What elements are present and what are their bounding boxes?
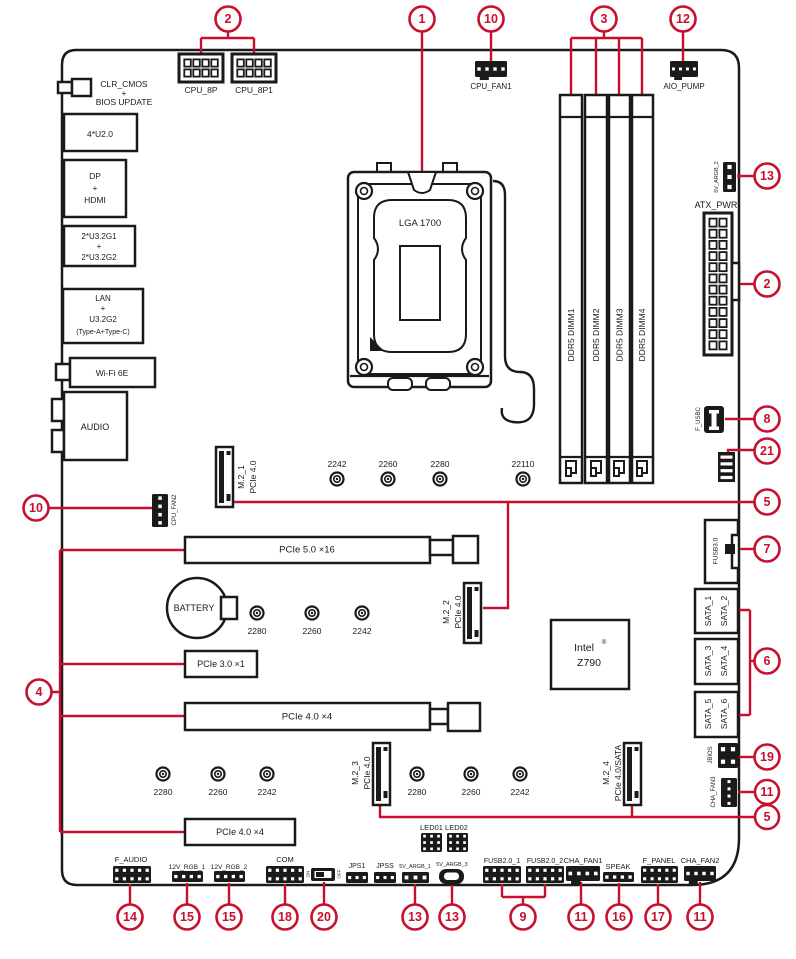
pin [586, 872, 590, 876]
cha-fan1-label: CHA_FAN1 [564, 856, 603, 865]
pin [437, 848, 440, 851]
pin [138, 877, 141, 880]
pin [719, 341, 726, 349]
fusb2-1-header [483, 866, 521, 883]
socket-screw-tl [356, 183, 372, 199]
m2-4-label: M.2_4 [601, 761, 611, 785]
pin [255, 69, 261, 76]
callout-number: 14 [123, 910, 137, 924]
dimm4-latch-tab [637, 468, 642, 476]
sata4-label: SATA_4 [719, 646, 729, 677]
dimm-slot-4: DDR5 DIMM4 [632, 95, 653, 483]
callout-number: 5 [764, 810, 771, 824]
m2-3-label: M.2_3 [350, 761, 360, 785]
dp-hdmi-plus: + [93, 183, 98, 193]
battery-notch [221, 597, 237, 619]
f-panel-header [641, 866, 678, 883]
dimm4-label: DDR5 DIMM4 [637, 308, 647, 361]
standoff-label: 2280 [408, 787, 427, 797]
argb1-label: 5V_ARGB_1 [399, 864, 431, 870]
callout-21: 21 [755, 439, 780, 464]
fusb3-header: FUSB3.0 [705, 520, 738, 583]
clr-cmos-nub [58, 82, 72, 93]
pin [485, 67, 488, 70]
pin [719, 297, 726, 305]
pin [299, 869, 302, 872]
pin [516, 877, 519, 880]
pin [193, 59, 200, 66]
callout-10-left: 10 [24, 496, 49, 521]
pin [658, 877, 661, 880]
pin [651, 869, 654, 872]
pin [115, 877, 118, 880]
standoff-label: 2280 [431, 459, 450, 469]
pcie4a-label: PCIe 4.0 ×4 [282, 712, 332, 723]
sata-block-34: SATA_3 SATA_4 [695, 639, 738, 684]
f-audio-label: F_AUDIO [115, 855, 148, 864]
pin [651, 877, 654, 880]
socket-screw-tr [467, 183, 483, 199]
callout-19: 19 [755, 745, 780, 770]
pin [237, 59, 244, 66]
dimm4-body [632, 95, 653, 483]
callout-15b: 15 [217, 905, 242, 930]
pin [211, 59, 218, 66]
connector-body [113, 866, 151, 883]
pin [500, 869, 503, 872]
callout-number: 18 [278, 910, 292, 924]
callout-10-top: 10 [479, 7, 504, 32]
pcie4a-latch [448, 703, 480, 731]
socket-foot-right [426, 378, 450, 390]
pin [240, 875, 243, 878]
pin [709, 286, 716, 294]
switch-off-label: OFF [337, 869, 342, 878]
port-audio: AUDIO [52, 392, 127, 460]
pin [621, 875, 624, 878]
cha-fan2-label: CHA_FAN2 [681, 856, 720, 865]
led-block-2 [447, 833, 468, 852]
dimm-slot-1: DDR5 DIMM1 [560, 95, 582, 483]
standoff [157, 768, 170, 781]
f-usbc-header: F_USBC [696, 406, 724, 433]
pin [719, 230, 726, 238]
pin [728, 780, 731, 783]
chipset-model: Z790 [577, 657, 601, 669]
jps1-header [346, 872, 368, 883]
pin [158, 505, 162, 509]
pin [291, 877, 294, 880]
debug-led-block [718, 452, 735, 482]
connector-body [641, 866, 678, 883]
sata-56-box [695, 692, 738, 737]
pin [686, 872, 689, 875]
pin [508, 877, 511, 880]
callout-4: 4 [27, 680, 52, 705]
pcie4a-neck [430, 709, 448, 724]
standoff [306, 607, 319, 620]
callout-number: 13 [445, 910, 459, 924]
pin [391, 876, 394, 879]
pin [643, 877, 646, 880]
pin [673, 869, 676, 872]
argb2-label: 5V_ARGB_2 [714, 161, 720, 193]
pin [430, 841, 433, 844]
callout-number: 11 [760, 785, 773, 799]
pcie4b-label: PCIe 4.0 ×4 [216, 827, 264, 837]
pin [658, 869, 661, 872]
socket-foot-left [388, 378, 412, 390]
callout-1: 1 [410, 7, 435, 32]
pin [193, 69, 200, 76]
connector-body [179, 54, 223, 82]
callout-number: 16 [612, 910, 626, 924]
rgb2-label: 12V_RGB_2 [211, 864, 248, 871]
callout-number: 20 [317, 910, 331, 924]
standoff [514, 768, 527, 781]
pin [423, 841, 426, 844]
pin [158, 521, 162, 525]
com-label: COM [276, 855, 294, 864]
pin [174, 875, 177, 878]
pin [500, 877, 503, 880]
pin [423, 835, 426, 838]
cha-fan3-header [721, 778, 737, 807]
standoff [212, 768, 225, 781]
callout-11a: 11 [569, 905, 594, 930]
connector-body [526, 866, 564, 883]
pin [456, 848, 459, 851]
cpu-fan2-label: CPU_FAN2 [172, 494, 178, 526]
pin [423, 876, 427, 880]
standoff [517, 473, 530, 486]
pin [283, 877, 286, 880]
standoff-label: 2260 [303, 626, 322, 636]
pin [731, 747, 735, 751]
m2-1-bus-label: PCIe 4.0 [248, 460, 258, 493]
pin [363, 876, 366, 879]
callout-number: 2 [764, 277, 771, 291]
pin [536, 877, 539, 880]
pin [264, 69, 271, 76]
sata-12-box [695, 589, 738, 633]
callout-17: 17 [646, 905, 671, 930]
pin [528, 869, 531, 872]
pin [430, 848, 433, 851]
dimm1-latch-tab [566, 468, 571, 476]
callout-number: 8 [764, 412, 771, 426]
cpu-8p-connector [179, 54, 223, 82]
audio-label: AUDIO [81, 422, 110, 432]
pin [702, 872, 705, 875]
pin [686, 68, 689, 71]
sata6-label: SATA_6 [719, 699, 729, 730]
pin [693, 68, 696, 71]
callout-13b: 13 [440, 905, 465, 930]
pin [456, 841, 459, 844]
rgb1-label: 12V_RGB_1 [169, 864, 206, 871]
pin [190, 875, 193, 878]
m2-2-label: M.2_2 [441, 600, 451, 624]
callout-number: 17 [651, 910, 665, 924]
audio-jack-nub-1 [52, 399, 64, 421]
argb3-header [439, 869, 464, 884]
pcie-4-x4-bottom-slot: PCIe 4.0 ×4 [185, 819, 295, 845]
dimm3-latch-tab [614, 468, 619, 476]
m2-4-bus-label: PCIe 4.0/SATA [613, 744, 623, 801]
pin [246, 59, 253, 66]
callout-number: 5 [764, 495, 771, 509]
pin [232, 875, 235, 878]
callout-2-top: 2 [216, 7, 241, 32]
pin [437, 835, 440, 838]
callout-number: 15 [180, 910, 194, 924]
callout-2-right: 2 [755, 272, 780, 297]
pin [485, 869, 488, 872]
switch-knob [316, 872, 324, 877]
pin [356, 876, 359, 879]
socket-label: LGA 1700 [399, 218, 441, 229]
pin [559, 869, 562, 872]
standoff-label: 2242 [353, 626, 372, 636]
pin [709, 308, 716, 316]
standoff [434, 473, 447, 486]
pin [477, 67, 480, 70]
fusb2-1-label: FUSB2.0_1 [484, 858, 520, 865]
callout-number: 6 [764, 654, 771, 668]
callout-18: 18 [273, 905, 298, 930]
pin [138, 869, 141, 872]
pin [528, 877, 531, 880]
pin [123, 869, 126, 872]
cpu-8p1-label: CPU_8P1 [235, 85, 273, 95]
connector-key-tab [480, 77, 489, 80]
chipset-brand: Intel [574, 642, 594, 654]
pin [202, 59, 209, 66]
port-wifi: Wi-Fi 6E [56, 358, 155, 387]
fusb2-2-label: FUSB2.0_2 [527, 858, 563, 865]
lan-label: LAN [95, 294, 111, 303]
pin [728, 795, 731, 798]
lan-usb-label: U3.2G2 [89, 315, 117, 324]
socket-screw-br [467, 359, 483, 375]
pin [543, 877, 546, 880]
sata-block-56: SATA_5 SATA_6 [695, 692, 738, 737]
connector-body [232, 54, 276, 82]
pin [348, 876, 351, 879]
pin [719, 308, 726, 316]
pin [559, 877, 562, 880]
pin [501, 67, 504, 70]
callout-6: 6 [755, 649, 780, 674]
pin [665, 877, 668, 880]
callout-number: 7 [764, 542, 771, 556]
pin [629, 875, 632, 878]
pin [709, 297, 716, 305]
port-wifi-nub [56, 364, 70, 380]
usb32-plus: + [97, 242, 102, 251]
pin [727, 175, 731, 179]
pin [202, 69, 209, 76]
callout-number: 4 [36, 685, 43, 699]
pin [543, 869, 546, 872]
cpu-8p1-connector [232, 54, 276, 82]
pin [485, 877, 488, 880]
port-usb2-label: 4*U2.0 [87, 129, 113, 139]
pin [493, 877, 496, 880]
pin [115, 869, 118, 872]
clr-cmos-body [72, 79, 91, 96]
standoff-label: 2242 [511, 787, 530, 797]
pin [449, 835, 452, 838]
pin [728, 802, 731, 805]
socket-screw-bl [356, 359, 372, 375]
pin [158, 496, 162, 500]
pin [508, 869, 511, 872]
fusb3-key [725, 544, 735, 554]
standoff-label: 22110 [511, 459, 534, 469]
callout-line-9 [502, 884, 545, 904]
pin [264, 59, 271, 66]
callout-16: 16 [607, 905, 632, 930]
callout-number: 11 [693, 910, 706, 924]
pin [430, 835, 433, 838]
pin [709, 252, 716, 260]
pin [727, 185, 731, 189]
pin [710, 872, 713, 875]
callout-line-6 [739, 610, 754, 715]
cha-fan3-label: CHA_FAN3 [711, 776, 717, 808]
pin [449, 848, 452, 851]
standoff-label: 2260 [379, 459, 398, 469]
diagram-canvas: CLR_CMOS + BIOS UPDATE 4*U2.0 DP + HDMI … [0, 0, 796, 959]
pin [719, 319, 726, 327]
pin [146, 869, 149, 872]
fusb2-2-header [526, 866, 564, 883]
pin [709, 274, 716, 282]
callout-5-lower: 5 [755, 805, 779, 829]
connector-body [483, 866, 521, 883]
callout-number: 10 [484, 12, 498, 26]
pin [536, 869, 539, 872]
bios-update-label: BIOS UPDATE [96, 97, 153, 107]
usb32-g1-label: 2*U3.2G1 [81, 232, 117, 241]
pcie5-neck [430, 540, 453, 555]
lan-type-label: (Type-A+Type-C) [76, 329, 130, 336]
m2-3-bus-label: PCIe 4.0 [362, 756, 372, 789]
callout-11-right: 11 [755, 780, 779, 804]
pin [551, 877, 554, 880]
callout-number: 10 [29, 501, 43, 515]
dimm3-label: DDR5 DIMM3 [615, 308, 625, 361]
callout-15a: 15 [175, 905, 200, 930]
port-dp-hdmi: DP + HDMI [64, 160, 126, 217]
connector-key-tab [571, 881, 581, 884]
sata-block-12: SATA_1 SATA_2 [695, 589, 738, 633]
cpu-8p-label: CPU_8P [184, 85, 217, 95]
pin [268, 877, 271, 880]
sata-34-box [695, 639, 738, 684]
connector-key-tab [674, 77, 682, 80]
pin [299, 877, 302, 880]
callout-number: 13 [760, 169, 774, 183]
callout-20: 20 [312, 905, 337, 930]
pin [255, 59, 261, 66]
standoff [465, 768, 478, 781]
rgb2-header [214, 871, 245, 882]
callout-number: 21 [760, 444, 774, 458]
pcie-3-x1-slot: PCIe 3.0 ×1 [185, 651, 257, 677]
callout-number: 12 [676, 12, 690, 26]
pin [493, 869, 496, 872]
callout-13-right: 13 [755, 164, 780, 189]
dimm2-latch-tab [591, 468, 596, 476]
port-usb2: 4*U2.0 [64, 114, 137, 151]
pin [551, 869, 554, 872]
pin [237, 69, 244, 76]
pcie3-label: PCIe 3.0 ×1 [197, 659, 245, 669]
battery-label: BATTERY [174, 603, 215, 613]
pin [130, 869, 133, 872]
com-header [266, 866, 304, 883]
pin [605, 875, 608, 878]
standoff-label: 2260 [209, 787, 228, 797]
aio-pump-label: AIO_PUMP [663, 82, 704, 91]
pin [719, 252, 726, 260]
led-blocks-label: LED01 LED02 [420, 823, 468, 832]
speak-label: SPEAK [605, 862, 630, 871]
pin [405, 876, 409, 880]
atx-power-clip [732, 263, 739, 300]
pin [709, 230, 716, 238]
speak-header [603, 872, 634, 882]
callout-12: 12 [671, 7, 696, 32]
pin [463, 848, 466, 851]
pin [276, 869, 279, 872]
sata2-label: SATA_2 [719, 596, 729, 627]
pin [577, 872, 581, 876]
callout-number: 15 [222, 910, 236, 924]
f-audio-header [113, 866, 151, 883]
hdmi-label: HDMI [84, 195, 106, 205]
pin [423, 848, 426, 851]
port-lan: LAN + U3.2G2 (Type-A+Type-C) [63, 289, 143, 343]
led-block-1 [421, 833, 442, 852]
pin [130, 877, 133, 880]
audio-jack-nub-2 [52, 430, 64, 452]
jpss-label: JPSS [376, 863, 394, 870]
pin [449, 841, 452, 844]
pin [184, 59, 191, 66]
standoff-label: 2242 [258, 787, 277, 797]
pin [594, 872, 598, 876]
pin [463, 835, 466, 838]
pin [728, 787, 731, 790]
callout-9: 9 [511, 905, 536, 930]
callout-number: 3 [601, 12, 608, 26]
pin [709, 341, 716, 349]
jps1-label: JPS1 [349, 863, 366, 870]
fusb3-label: FUSB3.0 [713, 537, 720, 564]
argb3-label: 5V_ARGB_3 [436, 862, 468, 868]
m2-2-bus-label: PCIe 4.0 [453, 595, 463, 628]
rgb1-header [172, 871, 203, 882]
pin [719, 286, 726, 294]
sata1-label: SATA_1 [703, 596, 713, 627]
pin [721, 760, 725, 764]
pin [719, 274, 726, 282]
callout-5-upper: 5 [755, 490, 780, 515]
